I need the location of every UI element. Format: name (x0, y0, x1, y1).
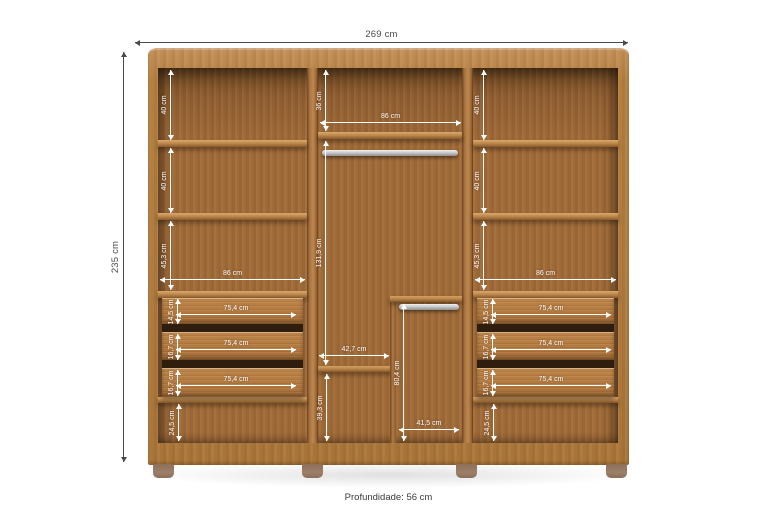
overall-width-label: 269 cm (365, 29, 397, 40)
divider-middle-right (462, 68, 473, 443)
middle-top-shelf (318, 132, 462, 139)
dim-label: 41,5 cm (417, 420, 442, 427)
middle-rod-section-top (390, 296, 462, 302)
wardrobe: 40 cm 40 cm 45,3 cm 86 cm 14,5 cm 16,7 c… (148, 48, 629, 465)
dim-label: 16,7 cm (168, 335, 175, 360)
dim-right-drawer-3-width: 75,4 cm (491, 385, 611, 386)
left-shelf-2 (158, 213, 307, 220)
dim-label: 39,3 cm (317, 395, 324, 420)
floor-shadow (140, 462, 640, 488)
dim-label: 16,7 cm (168, 371, 175, 396)
dim-left-section-1: 40 cm (170, 70, 171, 140)
dim-label: 86 cm (223, 270, 242, 277)
dim-middle-width: 86 cm (320, 122, 461, 123)
dim-middle-shelf-width: 42,7 cm (319, 355, 389, 356)
dim-label: 75,4 cm (224, 305, 249, 312)
dim-middle-rod-section-height: 80,4 cm (403, 304, 404, 441)
dim-label: 86 cm (536, 270, 555, 277)
dim-label: 40 cm (161, 171, 168, 190)
dim-right-width: 86 cm (475, 279, 616, 280)
dim-right-bottom-space: 24,5 cm (493, 404, 494, 441)
dim-label: 40 cm (474, 95, 481, 114)
middle-small-shelf (318, 366, 396, 372)
dim-label: 40 cm (161, 95, 168, 114)
dim-right-section-1: 40 cm (483, 70, 484, 140)
dim-left-drawer-2-width: 75,4 cm (176, 349, 296, 350)
dim-label: 75,4 cm (539, 376, 564, 383)
left-board-under-drawers (158, 397, 307, 403)
dim-label: 86 cm (381, 113, 400, 120)
depth-label: Profundidade: 56 cm (148, 492, 629, 503)
dim-left-width: 86 cm (160, 279, 305, 280)
dim-left-section-2: 40 cm (170, 148, 171, 213)
dim-middle-below-shelf: 39,3 cm (326, 374, 327, 441)
dim-right-drawer-1-width: 75,4 cm (491, 314, 611, 315)
dim-label: 45,3 cm (161, 243, 168, 268)
dim-label: 42,7 cm (342, 346, 367, 353)
dim-label: 36 cm (316, 91, 323, 110)
dim-label: 131,9 cm (316, 239, 323, 268)
wardrobe-dimension-diagram: 269 cm 235 cm (0, 0, 780, 520)
right-shelf-1 (473, 140, 618, 147)
left-shelf-1 (158, 140, 307, 147)
foot-2 (302, 464, 323, 478)
dim-label: 24,5 cm (169, 410, 176, 435)
dim-label: 75,4 cm (224, 340, 249, 347)
dim-right-section-2: 40 cm (483, 148, 484, 213)
dim-label: 24,5 cm (484, 410, 491, 435)
dim-label: 75,4 cm (539, 305, 564, 312)
dimension-overall-width: 269 cm (135, 42, 628, 43)
dim-right-drawer-2-width: 75,4 cm (491, 349, 611, 350)
dim-label: 80,4 cm (394, 360, 401, 385)
hanging-rod-main (322, 150, 458, 156)
right-shelf-2 (473, 213, 618, 220)
hanging-rod-small (399, 304, 459, 310)
dim-label: 75,4 cm (539, 340, 564, 347)
left-shelf-3 (158, 291, 307, 298)
dim-label: 40 cm (474, 171, 481, 190)
dimension-overall-height: 235 cm (123, 52, 124, 462)
foot-4 (606, 464, 627, 478)
dim-label: 16,7 cm (483, 371, 490, 396)
dim-middle-rod-section-width: 41,5 cm (399, 429, 459, 430)
dim-left-drawer-3-width: 75,4 cm (176, 385, 296, 386)
foot-3 (456, 464, 477, 478)
overall-height-label: 235 cm (110, 241, 121, 273)
dim-label: 75,4 cm (224, 376, 249, 383)
dim-label: 14,5 cm (483, 299, 490, 324)
dim-label: 16,7 cm (483, 335, 490, 360)
dim-middle-hanging-height: 131,9 cm (325, 141, 326, 365)
right-shelf-3 (473, 291, 618, 298)
dim-left-drawer-1-width: 75,4 cm (176, 314, 296, 315)
dim-label: 45,3 cm (474, 243, 481, 268)
foot-1 (153, 464, 174, 478)
dim-label: 14,5 cm (168, 299, 175, 324)
dim-left-bottom-space: 24,5 cm (178, 404, 179, 441)
right-board-under-drawers (473, 397, 618, 403)
